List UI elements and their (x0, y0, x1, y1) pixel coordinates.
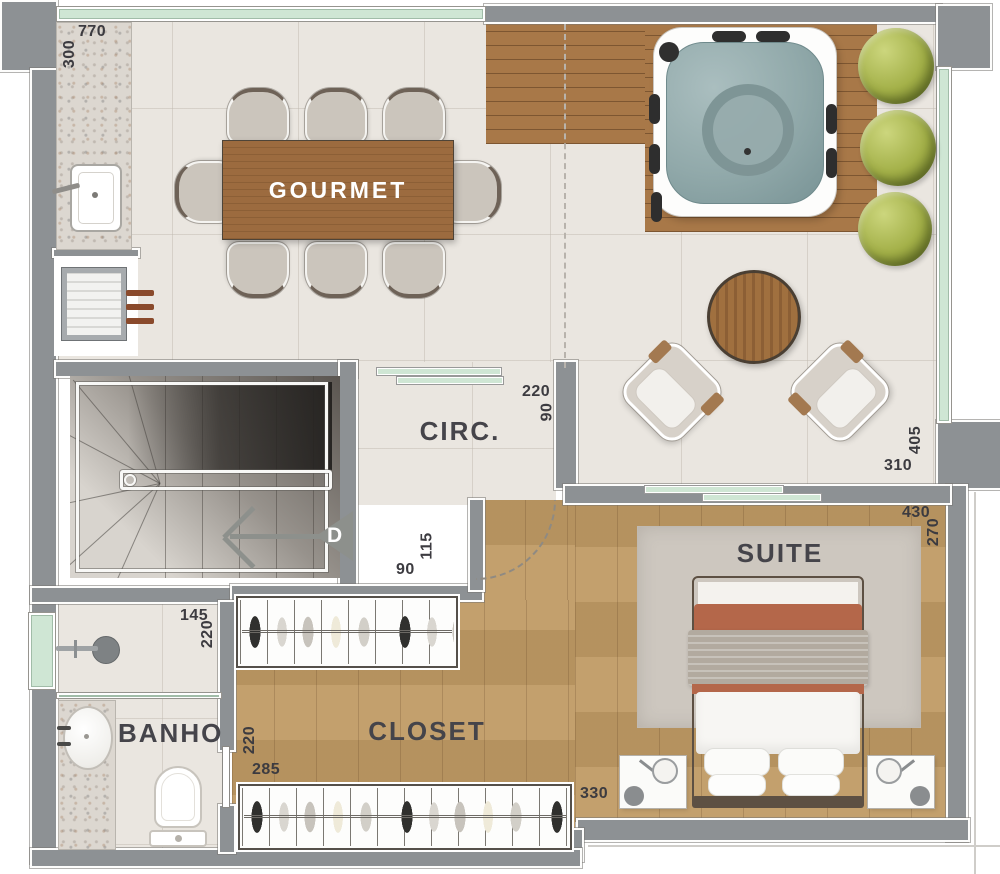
bed-blanket (688, 630, 868, 686)
sink-drain (92, 192, 98, 198)
stair-inner-rail (120, 470, 332, 490)
dim-stairs-passage-width: 90 (396, 562, 415, 578)
shower-arm (56, 646, 98, 651)
neighbor-outline-v (974, 492, 976, 874)
skewer (126, 304, 154, 310)
wardrobe-rack (236, 596, 458, 668)
hot-tub-headrest (756, 31, 790, 42)
door-glass (378, 369, 500, 374)
hot-tub-headrest (649, 144, 660, 174)
circ-room-label: CIRC. (400, 416, 520, 447)
window-terrace-right (936, 66, 952, 424)
dining-chair (305, 242, 367, 298)
sink-basin (78, 172, 114, 224)
division-dashed-line (564, 24, 566, 368)
basin-tap (57, 726, 71, 730)
window-top (56, 6, 486, 22)
hot-tub-headrest (712, 31, 746, 42)
dining-chair (383, 88, 445, 144)
wardrobe-rail (242, 630, 452, 633)
banho-door (222, 746, 230, 808)
wardrobe-rail (244, 815, 566, 818)
pillar-top-left (2, 2, 56, 70)
hot-tub-seat (702, 84, 794, 176)
dining-chair (227, 88, 289, 144)
neighbor-outline-h (588, 845, 1000, 847)
dim-circ-depth: 90 (539, 403, 555, 422)
floor-plan: GOURMET 770 300 310 405 CIRC. 220 90 90 … (0, 0, 1000, 874)
planter (858, 192, 932, 266)
bed-pillow (782, 774, 840, 796)
hot-tub-control (659, 42, 679, 62)
dining-chair (305, 88, 367, 144)
dim-banho-depth: 220 (200, 620, 216, 648)
lamp-shade (876, 758, 902, 784)
wall-stairs-top (56, 362, 356, 376)
wall-top-right (486, 6, 940, 22)
planter (860, 110, 936, 186)
hot-tub-headrest (651, 192, 662, 222)
dim-suite-bed-wall: 330 (580, 786, 608, 802)
sliding-door-circ-1 (376, 367, 502, 376)
bed-pillow (704, 748, 770, 776)
gourmet-room-label: GOURMET (269, 177, 408, 204)
dim-suite-depth: 270 (926, 518, 942, 546)
dim-closet-depth: 220 (242, 726, 258, 754)
pillar-top-right (938, 6, 990, 68)
stair-newel-spiral (124, 474, 136, 486)
suite-room-label: SUITE (698, 538, 862, 569)
wall-banho-right-lower (220, 806, 234, 852)
sliding-door-circ-2 (396, 376, 504, 385)
skewer (126, 318, 154, 324)
toilet-flush-button (175, 835, 182, 842)
bed-pillow (778, 748, 844, 776)
bed-pillow (708, 774, 766, 796)
dining-chair (383, 242, 445, 298)
dim-living-depth: 405 (908, 426, 924, 454)
round-table (707, 270, 801, 364)
dim-stairs-passage-depth: 115 (420, 532, 436, 559)
stairs-direction-label: D (327, 524, 342, 548)
dim-living-width: 310 (884, 458, 912, 474)
hot-tub-headrest (649, 94, 660, 124)
banho-room-label: BANHO (118, 718, 222, 749)
lamp-shade (652, 758, 678, 784)
bed-headboard (692, 796, 864, 808)
sliding-door-suite-2 (702, 493, 822, 502)
dim-circ-width: 220 (522, 384, 550, 400)
bed-duvet (696, 692, 860, 754)
wall-suite-right (948, 486, 966, 840)
door-glass (398, 378, 502, 383)
basin-tap (57, 742, 71, 746)
window-glass (939, 69, 949, 421)
dining-chair (227, 242, 289, 298)
hot-tub-headrest (826, 148, 837, 178)
partition-glass (59, 695, 219, 697)
stairs-down-arrow-shaft (230, 534, 320, 539)
wall-suite-bottom (578, 820, 968, 840)
shower-glass-partition (56, 692, 222, 699)
planter (858, 28, 934, 104)
lamp-base (624, 786, 644, 806)
lamp-base (910, 786, 930, 806)
toilet (154, 766, 202, 828)
window-glass (59, 9, 483, 19)
kitchen-sink (70, 164, 122, 232)
toilet-seat (161, 773, 195, 821)
wardrobe-rack (238, 784, 572, 850)
dim-closet-width: 285 (252, 762, 280, 778)
shower-handle (74, 640, 77, 658)
dim-gourmet-width: 770 (78, 24, 106, 40)
basin-drain (84, 734, 89, 739)
skewer (126, 290, 154, 296)
window-glass (31, 615, 53, 687)
grill (62, 268, 126, 340)
closet-room-label: CLOSET (362, 716, 492, 747)
deck-left (486, 22, 656, 144)
window-banho-left (28, 612, 56, 690)
dining-table: GOURMET (222, 140, 454, 240)
pillar-right-mid (938, 422, 1000, 488)
door-glass (704, 495, 820, 500)
wall-circ-right (556, 362, 576, 488)
wall-bottom-left (32, 850, 580, 866)
hot-tub-drain (744, 148, 751, 155)
hot-tub-headrest (826, 104, 837, 134)
dim-gourmet-depth: 300 (62, 40, 78, 68)
wall-banho-top (32, 588, 232, 602)
door-glass (646, 487, 782, 492)
